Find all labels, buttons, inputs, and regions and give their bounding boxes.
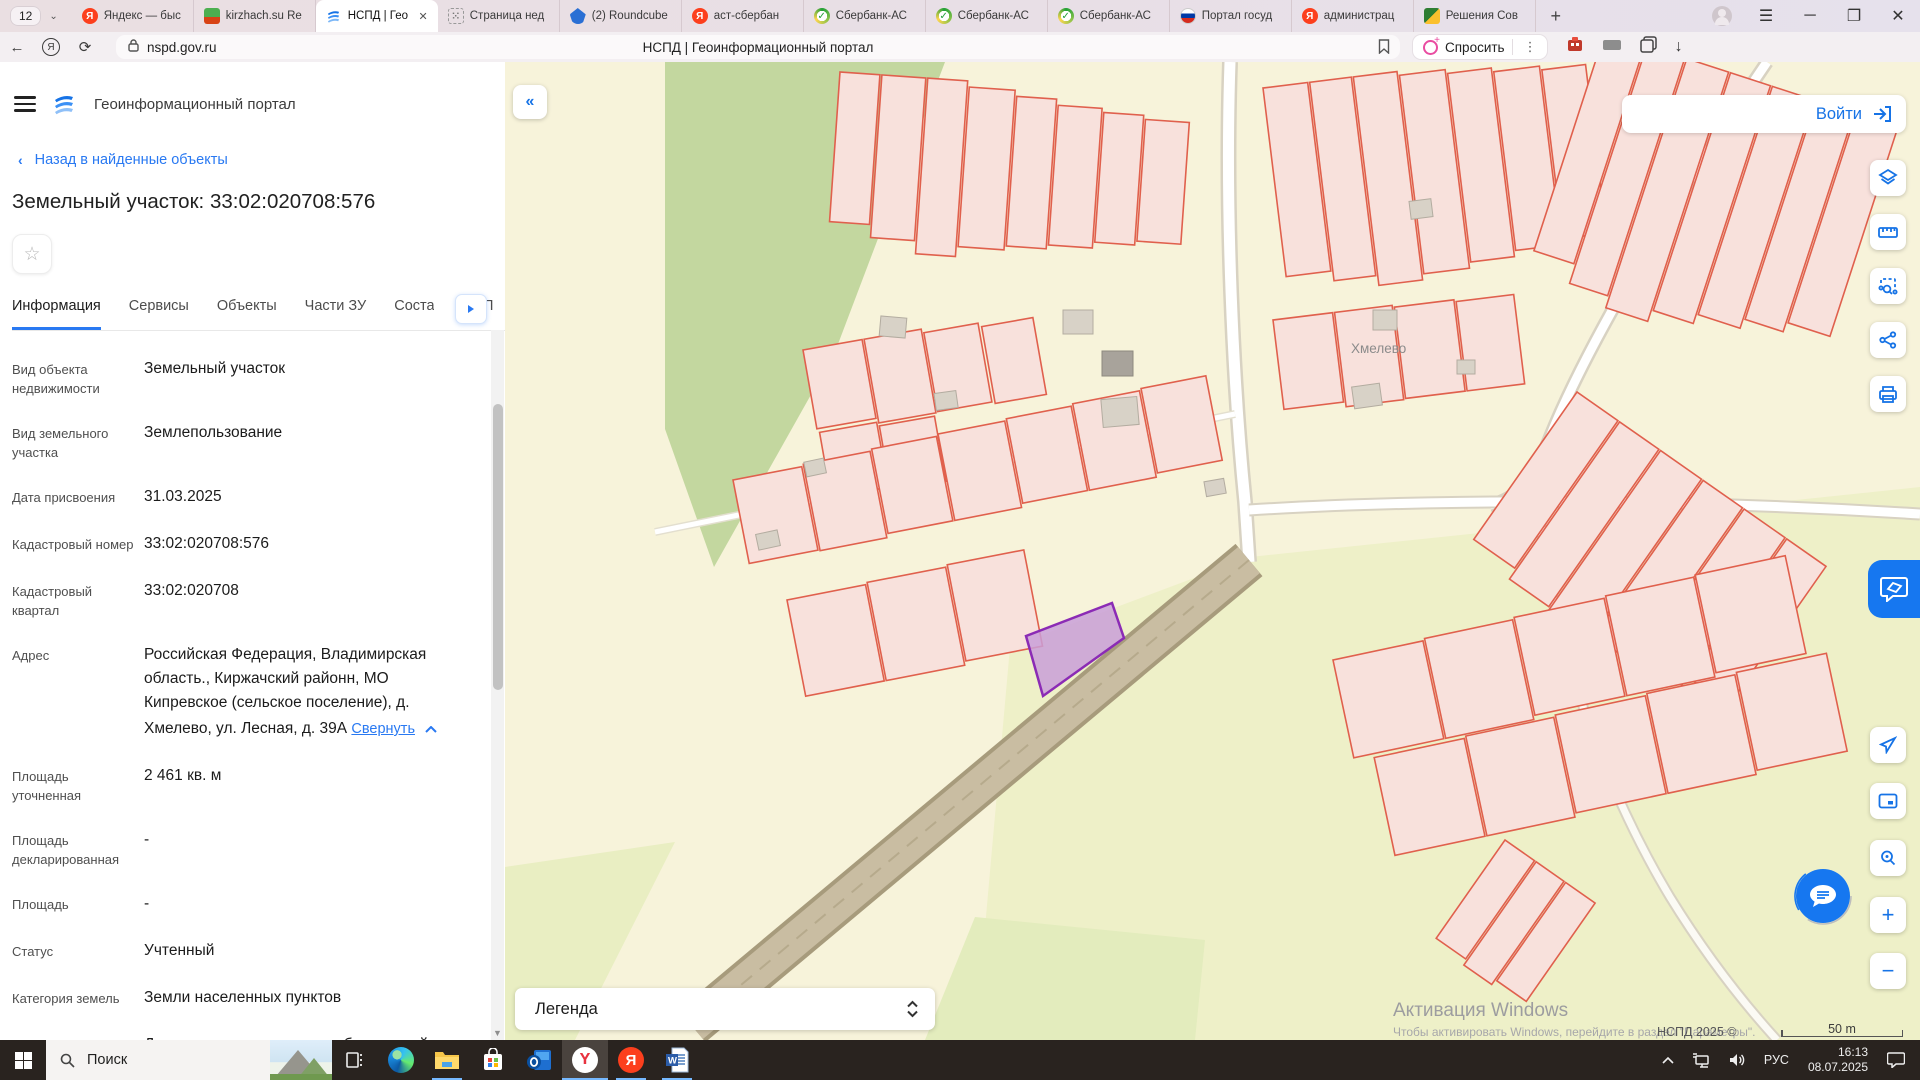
volume-tray-icon[interactable] [1722, 1040, 1753, 1080]
map-canvas[interactable]: .p { fill:#f8e1dc; stroke:#e0604d; strok… [505, 62, 1920, 1040]
attribute-label: Дата присвоения [12, 485, 136, 509]
print-button[interactable] [1870, 376, 1906, 412]
word-icon: W [665, 1047, 689, 1073]
new-tab-button[interactable]: + [1542, 2, 1570, 30]
browser-menu-button[interactable]: ☰ [1744, 0, 1788, 32]
word-taskbar-icon[interactable]: W [654, 1040, 700, 1080]
attribute-value: Земли населенных пунктов [144, 986, 469, 1010]
russia-flag-icon [1180, 8, 1196, 24]
yandex-home-icon[interactable]: Я [42, 38, 60, 56]
url-field[interactable]: nspd.gov.ru НСПД | Геоинформационный пор… [116, 35, 1400, 59]
browser-tab-sber-2[interactable]: Сбербанк-АС [926, 0, 1048, 32]
ai-sparkle-icon [1423, 40, 1438, 55]
attribute-label: Площадь [12, 892, 136, 916]
chat-widget-button[interactable] [1793, 866, 1853, 926]
browser-tab-yandex[interactable]: Яндекс — быс [72, 0, 194, 32]
chevron-up-icon [425, 726, 437, 733]
attribute-label: Категория земель [12, 986, 136, 1010]
panel-scrollbar-thumb[interactable] [493, 404, 503, 690]
map-copyright: НСПД 2025 © [1657, 1025, 1736, 1039]
attribute-value: Для ведения личного подсобного хозяйства… [144, 1033, 469, 1040]
attribute-label: Вид земельного участка [12, 421, 136, 462]
info-panel: Геоинформационный портал ‹ Назад в найде… [0, 62, 505, 1040]
browser-tab-kirzhach[interactable]: kirzhach.su Re [194, 0, 316, 32]
page-title-text: НСПД | Геоинформационный портал [116, 40, 1400, 55]
ethernet-icon [1692, 1053, 1711, 1068]
geolocation-button[interactable] [1870, 727, 1906, 763]
taskbar-search-box[interactable]: Поиск [46, 1040, 270, 1080]
menu-icon[interactable] [14, 96, 36, 112]
attribute-row: Вид разрешенного использования Для веден… [12, 1033, 469, 1040]
portal-logo-icon [52, 92, 76, 116]
browser-tab-sber-3[interactable]: Сбербанк-АС [1048, 0, 1170, 32]
attribute-value: 33:02:020708:576 [144, 532, 469, 556]
network-tray-icon[interactable] [1685, 1040, 1718, 1080]
weather-widget[interactable] [270, 1040, 332, 1080]
attribute-label: Площадь декларированная [12, 828, 136, 869]
printer-icon [1878, 385, 1898, 404]
svg-text:W: W [668, 1056, 677, 1067]
windows-taskbar: Поиск [0, 1040, 1920, 1080]
tab-services[interactable]: Сервисы [129, 298, 189, 330]
tab-parts[interactable]: Части ЗУ [305, 298, 367, 330]
back-to-results-link[interactable]: ‹ Назад в найденные объекты [18, 152, 505, 168]
attribute-value: Учтенный [144, 939, 469, 963]
page-icon: ⁙ [448, 8, 464, 24]
attributes-list: Вид объекта недвижимости Земельный участ… [12, 357, 505, 1040]
attribute-label: Кадастровый номер [12, 532, 136, 556]
favorite-star-button[interactable]: ☆ [12, 234, 52, 274]
yandex-icon [692, 8, 708, 24]
back-icon[interactable]: ← [0, 39, 34, 56]
outlook-icon [526, 1048, 552, 1072]
attribute-row: Дата присвоения 31.03.2025 [12, 485, 469, 509]
tabs-strip: Яндекс — быс kirzhach.su Re НСПД | Гео ✕… [72, 0, 1700, 32]
attribute-value: 2 461 кв. м [144, 764, 469, 805]
start-button[interactable] [0, 1040, 46, 1080]
extension-icon-1[interactable] [1566, 36, 1584, 59]
layers-icon [1878, 168, 1898, 188]
share-icon [1879, 331, 1897, 349]
location-arrow-icon [1879, 736, 1897, 754]
store-taskbar-icon[interactable] [470, 1040, 516, 1080]
outlook-taskbar-icon[interactable] [516, 1040, 562, 1080]
zoom-out-button[interactable]: − [1870, 953, 1906, 989]
crest-icon [204, 8, 220, 24]
browser-tab-page[interactable]: ⁙Страница нед [438, 0, 560, 32]
attribute-value: - [144, 828, 469, 869]
portal-title: Геоинформационный портал [94, 96, 296, 113]
chevron-down-icon[interactable]: ⌄ [43, 11, 63, 22]
yandex-browser-taskbar-icon[interactable]: Y [562, 1040, 608, 1080]
login-bar[interactable]: Войти [1622, 95, 1906, 133]
task-view-icon [346, 1052, 364, 1068]
browser-tab-gosuslugi[interactable]: Портал госуд [1170, 0, 1292, 32]
address-bar: ← Я ⟳ nspd.gov.ru НСПД | Геоинформационн… [0, 32, 1920, 62]
downloads-icon[interactable]: ↓ [1675, 38, 1683, 56]
roundcube-icon [570, 8, 586, 24]
system-tray: РУС 16:13 08.07.2025 [1655, 1040, 1920, 1080]
browser-tab-solutions[interactable]: Решения Сов [1414, 0, 1536, 32]
tab-count[interactable]: 12 [10, 6, 41, 26]
browser-tab-nspd-active[interactable]: НСПД | Гео ✕ [316, 0, 438, 32]
attribute-value: - [144, 892, 469, 916]
chat-bubble-icon [1809, 884, 1837, 908]
measure-button[interactable] [1870, 214, 1906, 250]
feedback-side-tab[interactable] [1868, 560, 1920, 618]
attribute-label: Площадь уточненная [12, 764, 136, 805]
attribute-row: Кадастровый номер 33:02:020708:576 [12, 532, 469, 556]
date: 08.07.2025 [1808, 1060, 1868, 1075]
legend-expand-icon[interactable] [906, 1000, 919, 1018]
yandex-icon [82, 8, 98, 24]
sber-check-icon [936, 8, 952, 24]
attribute-row: Статус Учтенный [12, 939, 469, 963]
explorer-taskbar-icon[interactable] [424, 1040, 470, 1080]
notification-center-button[interactable] [1880, 1040, 1912, 1080]
zoom-in-button[interactable]: + [1870, 897, 1906, 933]
task-view-button[interactable] [332, 1040, 378, 1080]
tabs-scroll-right-button[interactable] [455, 294, 487, 324]
attribute-row: Площадь - [12, 892, 469, 916]
tab-composition[interactable]: Соста [394, 298, 434, 330]
collapse-address-link[interactable]: Свернуть [351, 717, 437, 741]
scrollbar-down-arrow[interactable]: ▼ [492, 1028, 503, 1038]
layers-button[interactable] [1870, 160, 1906, 196]
attribute-row: Вид объекта недвижимости Земельный участ… [12, 357, 469, 398]
tab-information[interactable]: Информация [12, 298, 101, 330]
zoom-to-object-button[interactable] [1870, 840, 1906, 876]
edge-icon [388, 1047, 414, 1073]
attribute-row: Площадь уточненная 2 461 кв. м [12, 764, 469, 805]
attribute-row: Кадастровый квартал 33:02:020708 [12, 579, 469, 620]
ruler-icon [1878, 225, 1898, 239]
yandex-icon [1302, 8, 1318, 24]
attribute-row: Площадь декларированная - [12, 828, 469, 869]
arrow-right-icon [467, 304, 475, 314]
avatar-icon [1712, 6, 1732, 26]
magnifier-pin-icon [1879, 849, 1897, 867]
hidden-icons-chevron[interactable] [1655, 1040, 1681, 1080]
collections-icon[interactable] [1640, 36, 1657, 58]
attribute-label: Кадастровый квартал [12, 579, 136, 620]
window-controls: ☰ ─ ❐ ✕ [1700, 0, 1920, 32]
close-tab-icon[interactable]: ✕ [417, 10, 430, 23]
minimap-icon [1878, 793, 1898, 809]
folder-icon [434, 1049, 460, 1071]
share-button[interactable] [1870, 322, 1906, 358]
parcel-title: Земельный участок: 33:02:020708:576 [12, 190, 493, 214]
attribute-label: Вид разрешенного использования [12, 1033, 136, 1040]
attribute-row-address: Адрес Российская Федерация, Владимирская… [12, 643, 469, 741]
yandex-icon: Я [618, 1047, 644, 1073]
clock[interactable]: 16:13 08.07.2025 [1800, 1045, 1876, 1075]
browser-tab-sber-1[interactable]: Сбербанк-АС [804, 0, 926, 32]
language-indicator[interactable]: РУС [1757, 1040, 1796, 1080]
tab-objects[interactable]: Объекты [217, 298, 277, 330]
extension-icon-2[interactable] [1602, 38, 1622, 57]
area-search-icon [1878, 276, 1898, 296]
time: 16:13 [1808, 1045, 1868, 1060]
browser-tab-bar: 12 ⌄ Яндекс — быс kirzhach.su Re НСПД | … [0, 0, 1920, 32]
ask-ai-button[interactable]: Спросить ⋮ [1412, 34, 1548, 60]
profile-avatar[interactable] [1700, 0, 1744, 32]
attribute-value: 31.03.2025 [144, 485, 469, 509]
attribute-value: Земельный участок [144, 357, 469, 398]
collapse-panel-button[interactable]: « [513, 85, 547, 119]
minimize-button[interactable]: ─ [1788, 0, 1832, 32]
windows-logo-icon [15, 1052, 32, 1069]
more-options-icon[interactable]: ⋮ [1520, 39, 1541, 55]
browser-tab-roundcube[interactable]: (2) Roundcube [560, 0, 682, 32]
sber-check-icon [1058, 8, 1074, 24]
scale-bar: 50 m [1781, 1022, 1903, 1037]
search-in-area-button[interactable] [1870, 268, 1906, 304]
map-review-icon [1880, 576, 1908, 602]
building [879, 316, 907, 338]
panel-tabs: Информация Сервисы Объекты Части ЗУ Сост… [12, 298, 505, 331]
speaker-icon [1729, 1053, 1746, 1067]
bookmark-icon[interactable] [1378, 39, 1390, 57]
settlement-label: Хмелево [1351, 341, 1406, 356]
building-dark [1102, 351, 1133, 376]
edge-taskbar-icon[interactable] [378, 1040, 424, 1080]
attribute-value: Российская Федерация, Владимирская облас… [144, 643, 469, 741]
close-button[interactable]: ✕ [1876, 0, 1920, 32]
attribute-value: 33:02:020708 [144, 579, 469, 620]
browser-tab-ast-sber[interactable]: аст-сбербан [682, 0, 804, 32]
attribute-row: Категория земель Земли населенных пункто… [12, 986, 469, 1010]
emblem-icon [1424, 8, 1440, 24]
attribute-label: Адрес [12, 643, 136, 741]
attribute-label: Вид объекта недвижимости [12, 357, 136, 398]
tab-counter[interactable]: 12 ⌄ [10, 6, 64, 26]
yandex-app-taskbar-icon[interactable]: Я [608, 1040, 654, 1080]
panel-header: Геоинформационный портал [14, 92, 505, 116]
notification-icon [1887, 1052, 1905, 1068]
chevron-left-icon: ‹ [18, 152, 23, 168]
refresh-icon[interactable]: ⟳ [68, 38, 102, 56]
store-icon [482, 1048, 504, 1072]
maximize-button[interactable]: ❐ [1832, 0, 1876, 32]
chevron-up-icon [1662, 1056, 1674, 1064]
map-base-layer: .p { fill:#f8e1dc; stroke:#e0604d; strok… [505, 62, 1920, 1040]
nspd-logo-icon [326, 8, 342, 24]
browser-tab-admin[interactable]: администрац [1292, 0, 1414, 32]
attribute-label: Статус [12, 939, 136, 963]
attribute-value: Землепользование [144, 421, 469, 462]
sber-check-icon [814, 8, 830, 24]
legend-bar[interactable]: Легенда [515, 988, 935, 1030]
login-icon [1872, 106, 1892, 122]
search-icon [60, 1053, 75, 1068]
attribute-row: Вид земельного участка Землепользование [12, 421, 469, 462]
yandex-browser-icon: Y [572, 1047, 598, 1073]
overview-map-button[interactable] [1870, 783, 1906, 819]
